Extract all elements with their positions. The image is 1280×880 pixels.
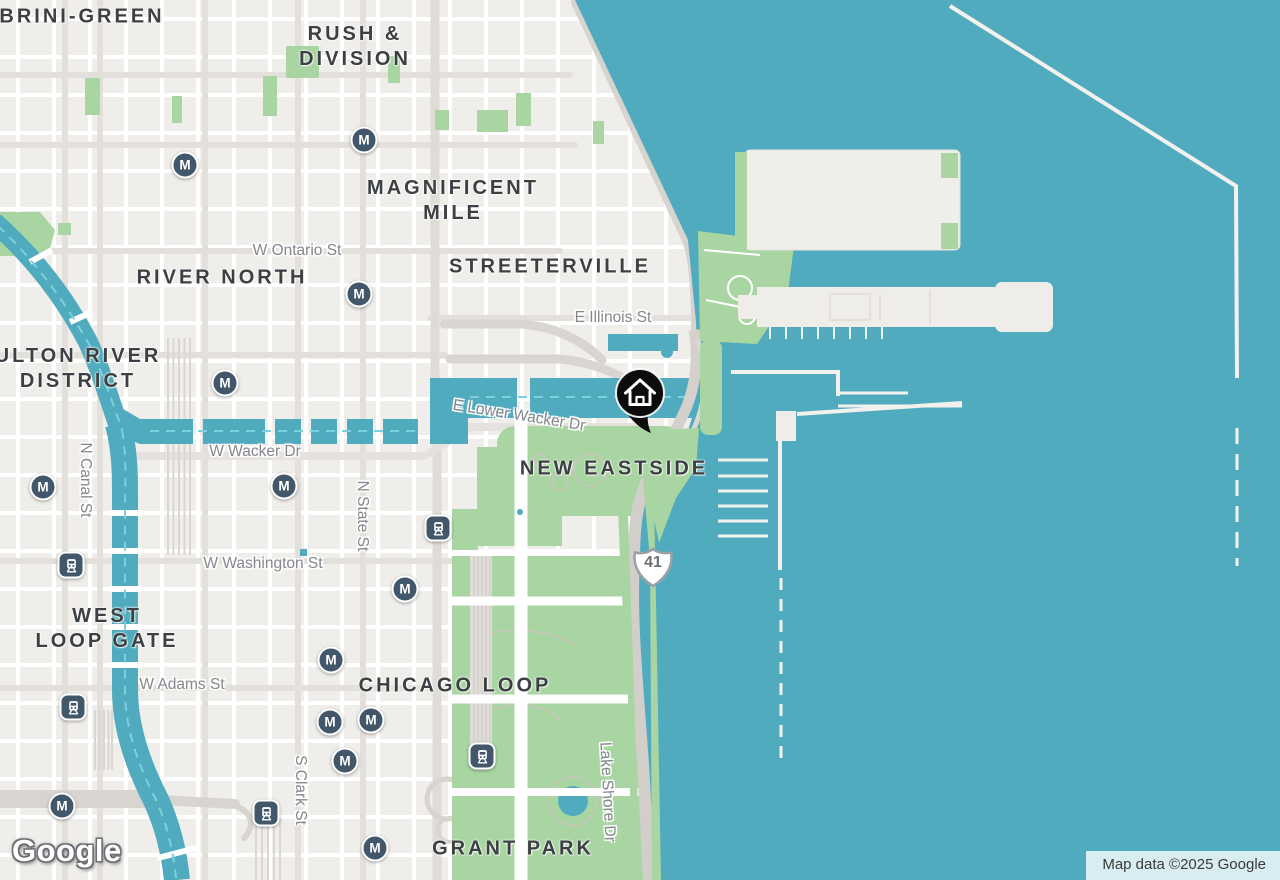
metro-icon: M xyxy=(365,713,376,727)
metro-icon: M xyxy=(339,754,350,768)
metro-station-marker[interactable]: M xyxy=(317,709,344,736)
train-icon xyxy=(63,557,79,573)
area-label: GRANT PARK xyxy=(432,837,594,862)
train-station-marker[interactable] xyxy=(425,515,452,542)
metro-icon: M xyxy=(399,582,410,596)
metro-icon: M xyxy=(325,653,336,667)
metro-station-marker[interactable]: M xyxy=(362,835,389,862)
metro-icon: M xyxy=(179,158,190,172)
area-label: RIVER NORTH xyxy=(137,266,308,291)
area-label: MAGNIFICENTMILE xyxy=(367,176,539,226)
street-label: W Adams St xyxy=(139,676,224,694)
train-station-marker[interactable] xyxy=(253,800,280,827)
metro-icon: M xyxy=(353,287,364,301)
area-label: STREETERVILLE xyxy=(449,255,651,280)
map-attribution: Map data ©2025 Google xyxy=(1086,851,1280,880)
home-marker-pin[interactable] xyxy=(610,366,670,445)
area-label: WESTLOOP GATE xyxy=(36,604,179,654)
area-label: CHICAGO LOOP xyxy=(359,674,552,699)
metro-station-marker[interactable]: M xyxy=(318,647,345,674)
street-label: W Ontario St xyxy=(253,242,342,260)
google-logo[interactable]: Google xyxy=(12,833,122,869)
metro-station-marker[interactable]: M xyxy=(358,707,385,734)
metro-station-marker[interactable]: M xyxy=(172,152,199,179)
area-label: NEW EASTSIDE xyxy=(520,457,708,482)
home-pin-shape xyxy=(616,369,664,433)
metro-icon: M xyxy=(324,715,335,729)
train-icon xyxy=(65,699,81,715)
metro-icon: M xyxy=(358,133,369,147)
metro-icon: M xyxy=(56,799,67,813)
train-station-marker[interactable] xyxy=(469,743,496,770)
metro-station-marker[interactable]: M xyxy=(351,127,378,154)
street-label: N State St xyxy=(353,481,371,552)
metro-station-marker[interactable]: M xyxy=(49,793,76,820)
train-station-marker[interactable] xyxy=(60,694,87,721)
metro-icon: M xyxy=(278,479,289,493)
area-label: RUSH &DIVISION xyxy=(299,22,411,72)
metro-station-marker[interactable]: M xyxy=(392,576,419,603)
metro-icon: M xyxy=(37,480,48,494)
street-label: W Washington St xyxy=(203,555,322,573)
metro-station-marker[interactable]: M xyxy=(346,281,373,308)
metro-icon: M xyxy=(369,841,380,855)
train-icon xyxy=(474,748,490,764)
street-label: N Canal St xyxy=(76,443,94,518)
train-icon xyxy=(258,805,274,821)
street-label: E Illinois St xyxy=(575,309,652,327)
metro-station-marker[interactable]: M xyxy=(30,474,57,501)
area-label: BRINI-GREEN xyxy=(0,5,165,30)
area-label: ULTON RIVERDISTRICT xyxy=(0,344,161,394)
metro-station-marker[interactable]: M xyxy=(271,473,298,500)
metro-icon: M xyxy=(219,376,230,390)
shield-number: 41 xyxy=(630,554,676,572)
map-canvas[interactable]: BRINI-GREENRUSH &DIVISIONMAGNIFICENTMILE… xyxy=(0,0,1280,880)
train-station-marker[interactable] xyxy=(58,552,85,579)
street-label: S Clark St xyxy=(291,755,309,825)
route-41-shield: 41 xyxy=(630,545,676,589)
metro-station-marker[interactable]: M xyxy=(212,370,239,397)
metro-station-marker[interactable]: M xyxy=(332,748,359,775)
train-icon xyxy=(430,520,446,536)
street-label: W Wacker Dr xyxy=(209,443,301,461)
